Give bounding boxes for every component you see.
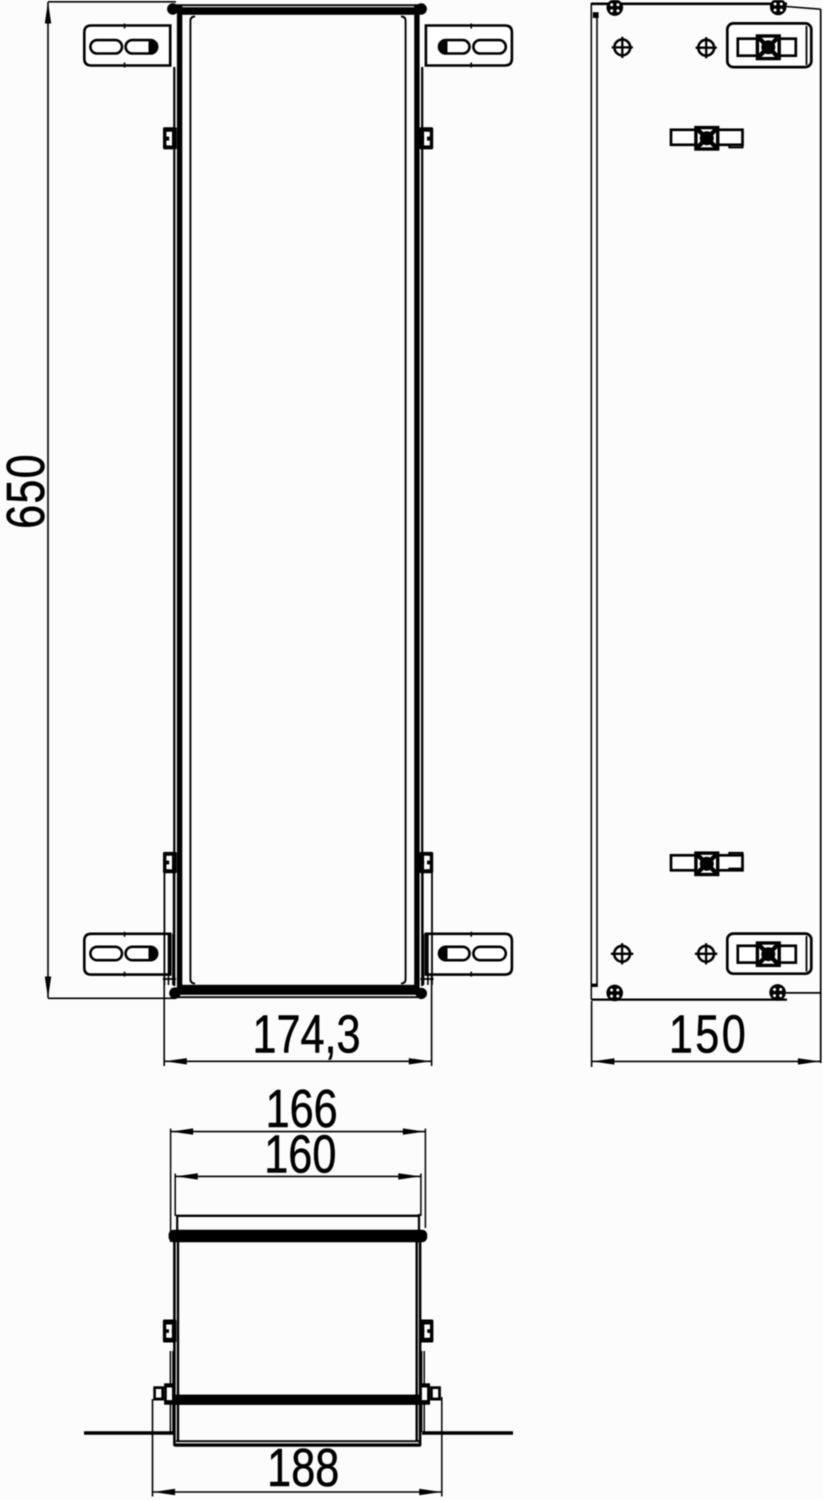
svg-text:650: 650 (0, 453, 56, 529)
svg-text:160: 160 (264, 1125, 336, 1185)
svg-text:174,3: 174,3 (252, 1005, 360, 1065)
svg-text:150: 150 (669, 1005, 748, 1065)
svg-text:188: 188 (267, 1439, 339, 1499)
